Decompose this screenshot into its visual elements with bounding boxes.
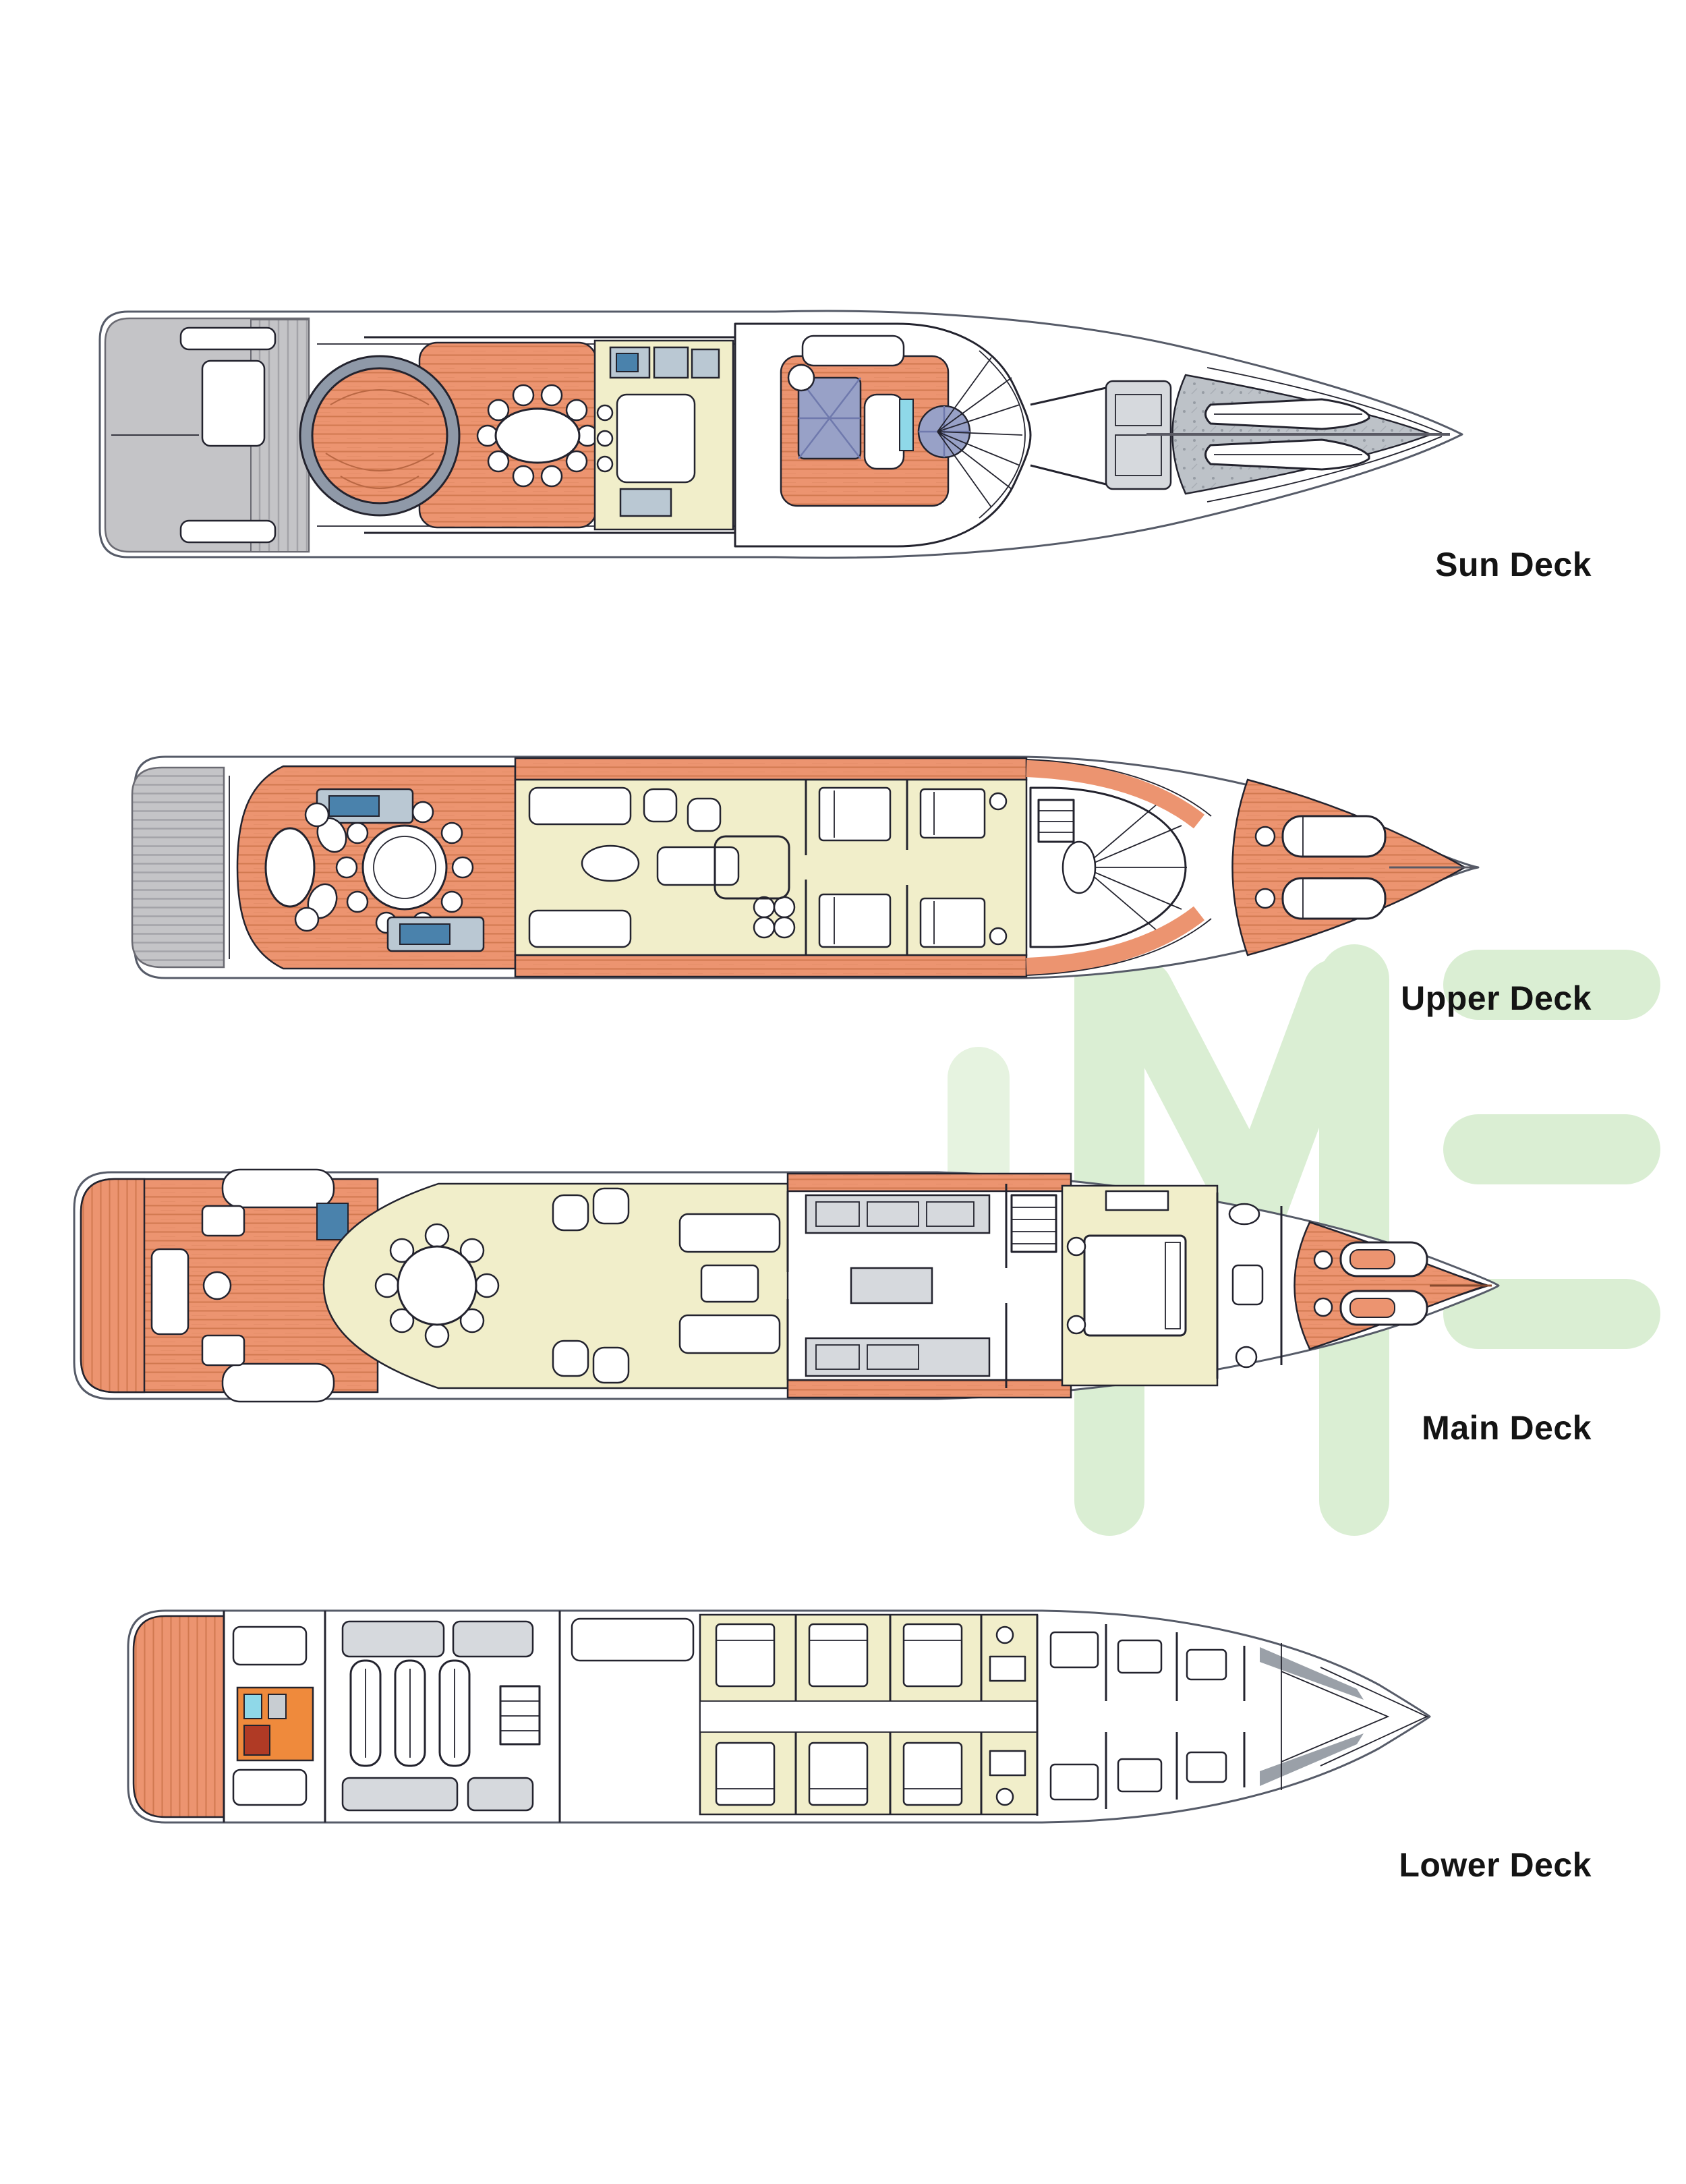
upper-deck-label: Upper Deck (1120, 981, 1592, 1015)
spa-pool (300, 356, 459, 515)
master-stateroom (1062, 1186, 1281, 1385)
sun-deck-bar (595, 341, 733, 529)
tank-space (572, 1619, 693, 1661)
main-dining-table (398, 1246, 476, 1325)
sun-deck-plan (100, 311, 1462, 558)
lower-deck-plan (128, 1611, 1430, 1822)
upper-bow-deck (1233, 780, 1475, 955)
sun-deck-aft-structure (105, 318, 309, 552)
main-deck-label: Main Deck (1120, 1411, 1592, 1445)
upper-salon (515, 780, 1026, 955)
lower-deck-label: Lower Deck (1120, 1848, 1592, 1882)
guest-cabins (700, 1615, 1037, 1814)
sun-deck-lounge (735, 324, 1030, 546)
upper-deck-plan (132, 757, 1478, 978)
main-salon (324, 1184, 788, 1388)
sun-deck-label: Sun Deck (1120, 548, 1592, 581)
deck-plan-sheet: Sun Deck Upper Deck Main Deck Lower Deck (0, 0, 1686, 2184)
stern-steps (132, 768, 224, 967)
swim-platform (134, 1616, 224, 1817)
master-bed (1084, 1236, 1186, 1335)
